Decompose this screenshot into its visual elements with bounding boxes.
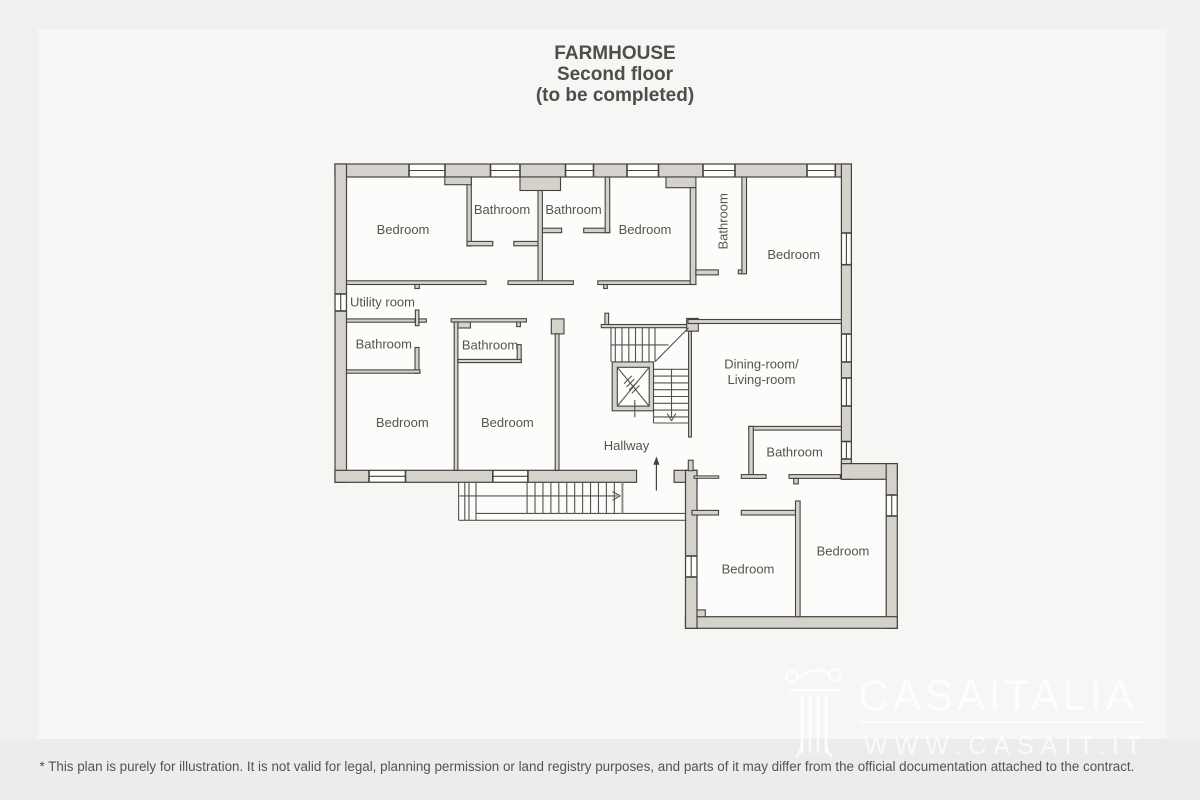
svg-text:Living-room: Living-room [728, 372, 796, 387]
svg-text:Dining-room/: Dining-room/ [724, 356, 799, 371]
svg-text:Bathroom: Bathroom [474, 202, 530, 217]
svg-text:Bedroom: Bedroom [817, 544, 870, 559]
svg-text:Bathroom: Bathroom [766, 444, 822, 459]
svg-text:Hallway: Hallway [604, 438, 650, 453]
svg-text:Bathroom: Bathroom [715, 193, 730, 249]
svg-text:Bathroom: Bathroom [545, 202, 601, 217]
svg-text:Bathroom: Bathroom [462, 337, 518, 352]
svg-text:Bedroom: Bedroom [377, 222, 430, 237]
svg-text:Bathroom: Bathroom [356, 336, 412, 351]
svg-text:Bedroom: Bedroom [619, 222, 672, 237]
svg-text:Bedroom: Bedroom [767, 247, 820, 262]
svg-text:Bedroom: Bedroom [722, 562, 775, 577]
svg-text:Bedroom: Bedroom [376, 415, 429, 430]
svg-text:Utility room: Utility room [350, 295, 415, 310]
svg-text:Bedroom: Bedroom [481, 415, 534, 430]
